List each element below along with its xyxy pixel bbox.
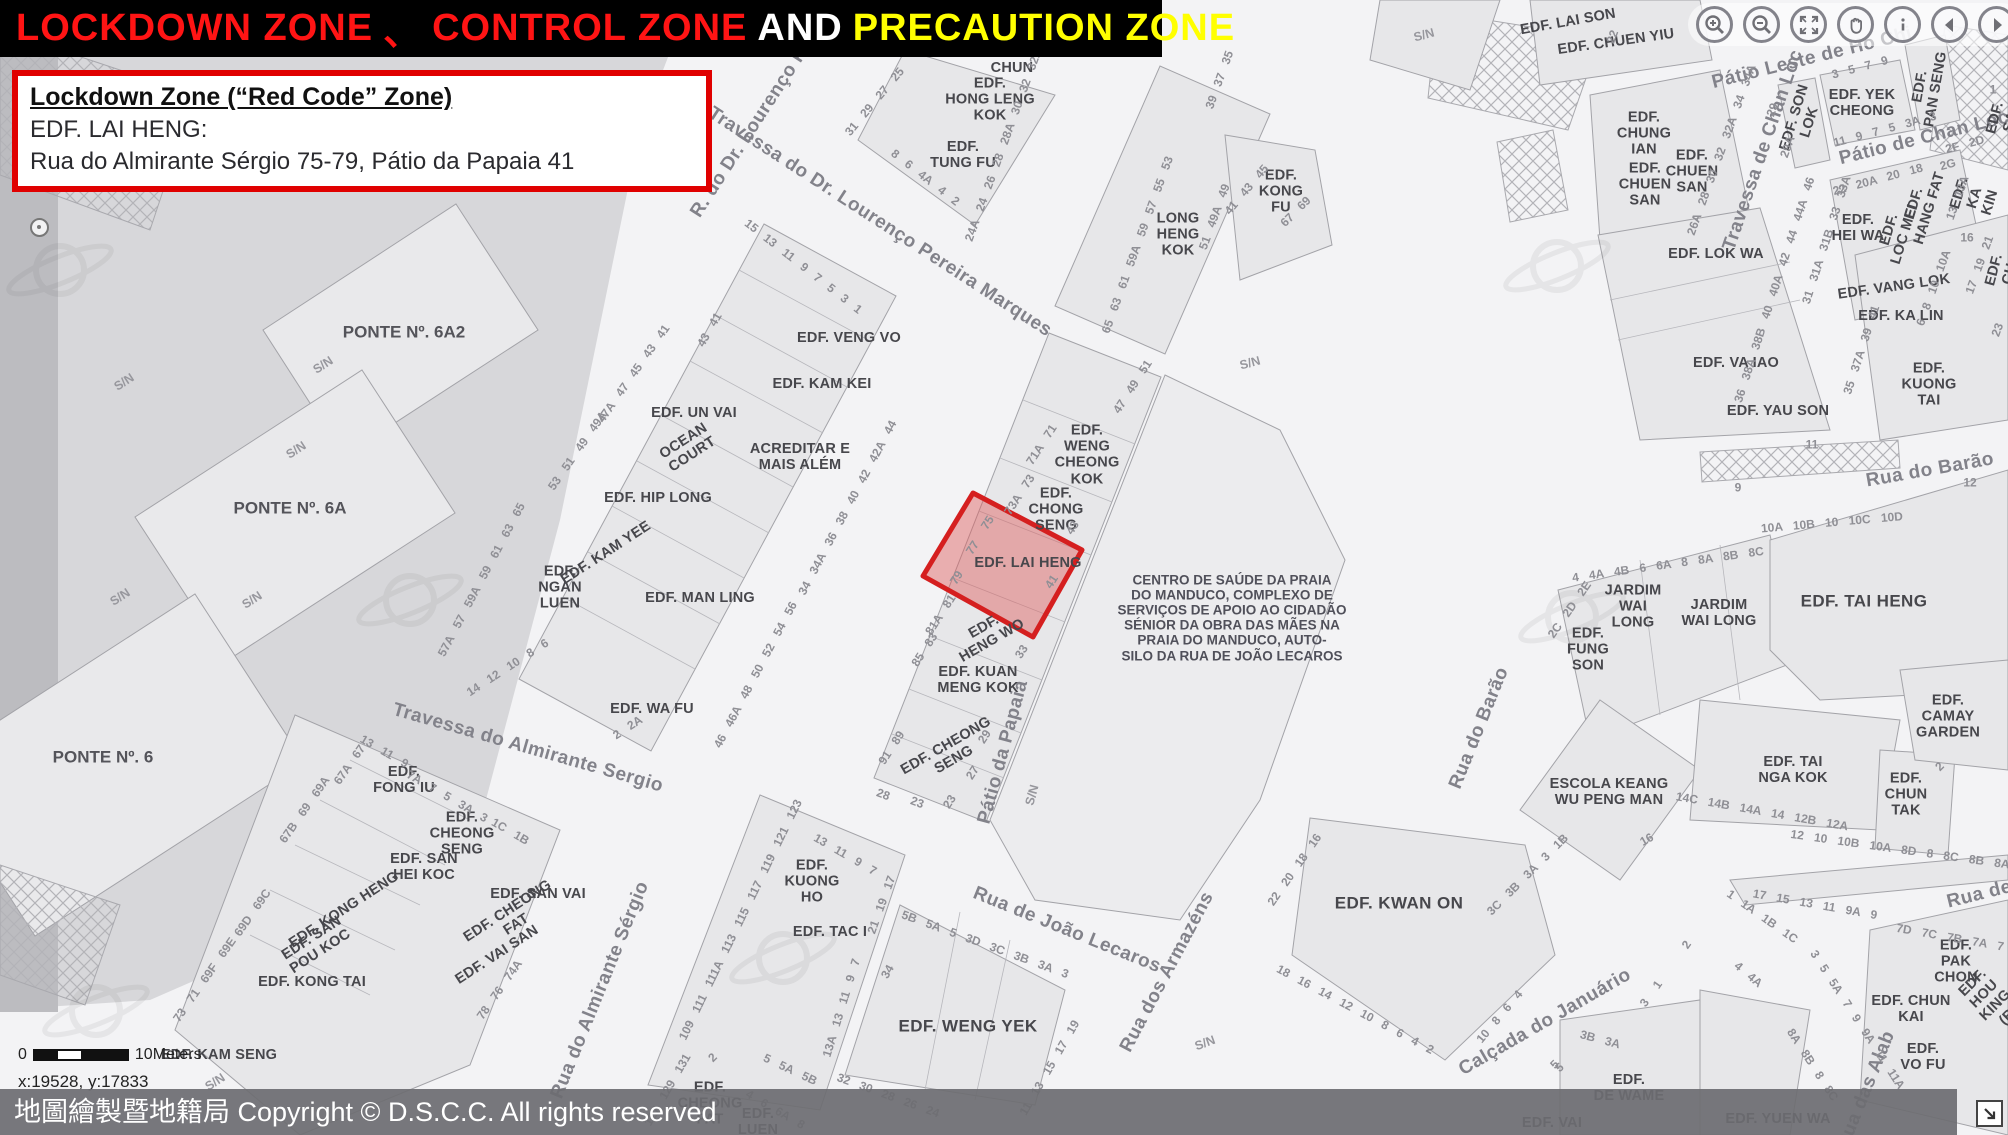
info-icon: [1892, 14, 1914, 36]
lockdown-info-box: Lockdown Zone (“Red Code” Zone) EDF. LAI…: [12, 70, 712, 192]
forward-button[interactable]: [1978, 6, 2008, 43]
pan-hand-icon: [1845, 14, 1867, 36]
banner-lockdown-zone: LOCKDOWN ZONE: [16, 7, 373, 50]
back-button[interactable]: [1931, 6, 1968, 43]
arrow-right-icon: [1986, 14, 2008, 36]
map-screenshot: Travessa do Dr. Lourenço Pereira Marques…: [0, 0, 2008, 1135]
scale-distance-label: 10Meters: [135, 1046, 202, 1064]
scale-bar-graphic: [33, 1049, 129, 1061]
zoom-in-icon: [1704, 14, 1726, 36]
banner-and: AND: [757, 7, 842, 50]
banner-separator: 、: [383, 1, 422, 56]
zoom-in-button[interactable]: [1696, 6, 1733, 43]
info-button[interactable]: [1884, 6, 1921, 43]
copyright-bar: 地圖繪製暨地籍局 Copyright © D.S.C.C. All rights…: [0, 1089, 1957, 1135]
zoom-out-button[interactable]: [1743, 6, 1780, 43]
lockdown-info-title: Lockdown Zone (“Red Code” Zone): [30, 83, 694, 112]
pan-button[interactable]: [1837, 6, 1874, 43]
banner-control-zone: CONTROL ZONE: [432, 7, 747, 50]
scale-bar: 0 10Meters: [18, 1046, 202, 1064]
lockdown-info-building: EDF. LAI HENG:: [30, 116, 694, 144]
fullscreen-icon: [1798, 14, 1820, 36]
banner-precaution-zone: PRECAUTION ZONE: [853, 7, 1235, 50]
resize-handle-button[interactable]: [1976, 1100, 2003, 1127]
lockdown-info-address: Rua do Almirante Sérgio 75-79, Pátio da …: [30, 148, 694, 176]
layer-radio-icon[interactable]: [30, 218, 49, 237]
scale-zero-label: 0: [18, 1046, 27, 1064]
arrow-southeast-icon: [1982, 1106, 1998, 1122]
arrow-left-icon: [1939, 14, 1961, 36]
zone-banner: LOCKDOWN ZONE 、 CONTROL ZONE AND PRECAUT…: [0, 0, 1162, 57]
map-toolbar: [1688, 3, 2008, 46]
zoom-out-icon: [1751, 14, 1773, 36]
fullscreen-button[interactable]: [1790, 6, 1827, 43]
